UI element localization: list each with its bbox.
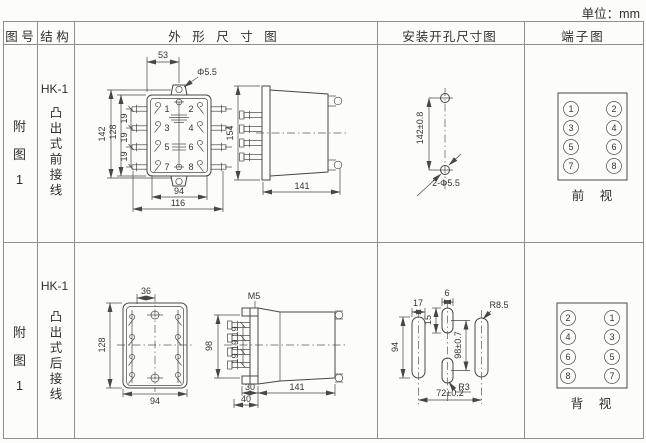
- col-header-outline: 外 形 尺 寸 图: [73, 26, 376, 45]
- svg-text:30: 30: [245, 382, 255, 392]
- svg-text:7: 7: [164, 162, 169, 172]
- svg-text:154: 154: [225, 125, 235, 140]
- svg-text:1: 1: [164, 104, 169, 114]
- svg-text:Φ5.5: Φ5.5: [197, 67, 217, 77]
- terminal-diagram-rear-view: 2 1 4 3 6 5 8 7 背 视: [524, 242, 644, 438]
- svg-text:17: 17: [413, 298, 423, 308]
- fig-no-char: 1: [3, 172, 36, 187]
- fig-no-char: 图: [3, 350, 36, 369]
- label-radius-right: R8.5: [483, 300, 509, 319]
- svg-text:19: 19: [119, 113, 129, 123]
- view-label-rear: 背 视: [571, 396, 617, 411]
- svg-text:40: 40: [241, 394, 251, 404]
- dim-128: 128: [97, 303, 122, 388]
- svg-text:6: 6: [565, 352, 570, 362]
- svg-text:98: 98: [204, 341, 214, 351]
- spec-sheet-page: 单位：mm 图 号 结 构 外 形 尺 寸 图 安装开孔尺寸图 端子图 附 图 …: [0, 0, 646, 443]
- outline-drawing-rear-wiring: 36 128 94: [74, 242, 375, 438]
- svg-text:4: 4: [188, 123, 193, 133]
- relay-side-view: [240, 86, 347, 180]
- svg-text:2: 2: [611, 104, 616, 114]
- svg-text:1: 1: [568, 104, 573, 114]
- fig-no-cell-row2: 附 图 1: [3, 322, 36, 393]
- svg-text:6: 6: [611, 142, 616, 152]
- label-hole-count: 2-Φ5.5: [417, 154, 461, 196]
- svg-text:7: 7: [568, 161, 573, 171]
- dim-screw: M5: [248, 291, 261, 308]
- fig-no-char: 附: [3, 116, 36, 135]
- svg-text:R8.5: R8.5: [489, 300, 508, 310]
- svg-text:36: 36: [141, 286, 151, 296]
- dim-slot-pitch: 98±0.7: [451, 321, 470, 371]
- svg-text:4: 4: [565, 332, 570, 342]
- svg-text:94: 94: [150, 396, 160, 406]
- dim-pitch-19: 19 19 19: [119, 106, 134, 170]
- dim-141: 141: [258, 382, 335, 396]
- view-label-front: 前 视: [572, 188, 618, 203]
- svg-text:1: 1: [609, 313, 614, 323]
- model-label-row1: HK-1: [36, 82, 73, 96]
- svg-text:3: 3: [609, 332, 614, 342]
- svg-text:128: 128: [108, 124, 118, 139]
- relay-side-view: [224, 308, 348, 384]
- svg-text:116: 116: [171, 198, 185, 208]
- svg-text:141: 141: [294, 181, 309, 191]
- mounting-holes: [429, 88, 453, 190]
- model-label-row2: HK-1: [36, 279, 73, 293]
- dim-94: 94: [152, 175, 207, 200]
- dim-hole-dia: Φ5.5: [184, 67, 217, 87]
- col-header-fig-no: 图 号: [3, 26, 36, 45]
- svg-text:6: 6: [188, 142, 193, 152]
- dim-94: 94: [390, 317, 410, 378]
- svg-text:3: 3: [164, 123, 169, 133]
- col-header-mounting: 安装开孔尺寸图: [376, 26, 523, 45]
- dim-36: 36: [137, 286, 155, 304]
- svg-text:15: 15: [423, 315, 433, 325]
- outline-drawing-front-wiring: 12 34 56 78 53 Φ5.5 142 128: [74, 44, 375, 240]
- terminal-diagram-front-view: 1 2 3 4 5 6 7 8 前 视: [524, 44, 644, 240]
- structure-label-row1: 凸出式前接线: [48, 106, 61, 199]
- mounting-hole-drawing-front-wiring: 142±0.8 2-Φ5.5: [377, 44, 522, 240]
- dim-hole-pitch: 142±0.8: [415, 98, 429, 170]
- svg-text:142: 142: [97, 126, 107, 141]
- svg-text:4: 4: [611, 123, 616, 133]
- terminal-circles: 1 2 3 4 5 6 7 8: [564, 102, 622, 174]
- dim-15: 15: [423, 308, 441, 333]
- fig-no-char: 附: [3, 322, 36, 341]
- svg-text:7: 7: [609, 371, 614, 381]
- svg-text:19: 19: [230, 353, 240, 363]
- fig-no-cell-row1: 附 图 1: [3, 116, 36, 187]
- svg-text:141: 141: [289, 382, 304, 392]
- svg-text:2: 2: [565, 313, 570, 323]
- dim-span: 72±0.2: [419, 388, 482, 400]
- svg-text:M5: M5: [248, 291, 261, 301]
- svg-text:5: 5: [568, 142, 573, 152]
- svg-text:142±0.8: 142±0.8: [415, 112, 425, 144]
- col-header-structure: 结 构: [36, 26, 73, 45]
- svg-text:19: 19: [119, 132, 129, 142]
- svg-text:3: 3: [568, 123, 573, 133]
- svg-text:8: 8: [611, 161, 616, 171]
- unit-label: 单位：mm: [540, 3, 640, 22]
- dim-pitch-19: 19 19 19: [230, 322, 246, 368]
- svg-text:8: 8: [188, 162, 193, 172]
- structure-label-row2: 凸出式后接线: [48, 310, 61, 403]
- svg-text:98±0.7: 98±0.7: [453, 331, 463, 358]
- svg-text:5: 5: [164, 142, 169, 152]
- svg-text:8: 8: [565, 371, 570, 381]
- relay-front-view: [117, 294, 193, 392]
- svg-text:2-Φ5.5: 2-Φ5.5: [432, 178, 460, 188]
- svg-text:72±0.2: 72±0.2: [436, 388, 463, 398]
- relay-front-view: 12 34 56 78: [132, 85, 232, 186]
- col-header-terminal: 端子图: [523, 26, 643, 45]
- svg-text:53: 53: [158, 50, 168, 60]
- mounting-hole-drawing-rear-wiring: 17 94 6 15 98±0.7 R8.5: [377, 242, 522, 438]
- dim-53: 53: [147, 50, 179, 92]
- fig-no-char: 1: [3, 378, 36, 393]
- svg-text:94: 94: [174, 186, 184, 196]
- svg-text:2: 2: [188, 104, 193, 114]
- svg-text:19: 19: [230, 340, 240, 350]
- svg-text:5: 5: [609, 352, 614, 362]
- svg-text:6: 6: [444, 288, 449, 298]
- svg-text:128: 128: [97, 337, 107, 352]
- fig-no-char: 图: [3, 144, 36, 163]
- svg-text:94: 94: [390, 342, 400, 352]
- svg-text:19: 19: [119, 151, 129, 161]
- dim-40: 40: [234, 394, 258, 408]
- terminal-circles: 2 1 4 3 6 5 8 7: [561, 311, 620, 384]
- svg-text:19: 19: [230, 326, 240, 336]
